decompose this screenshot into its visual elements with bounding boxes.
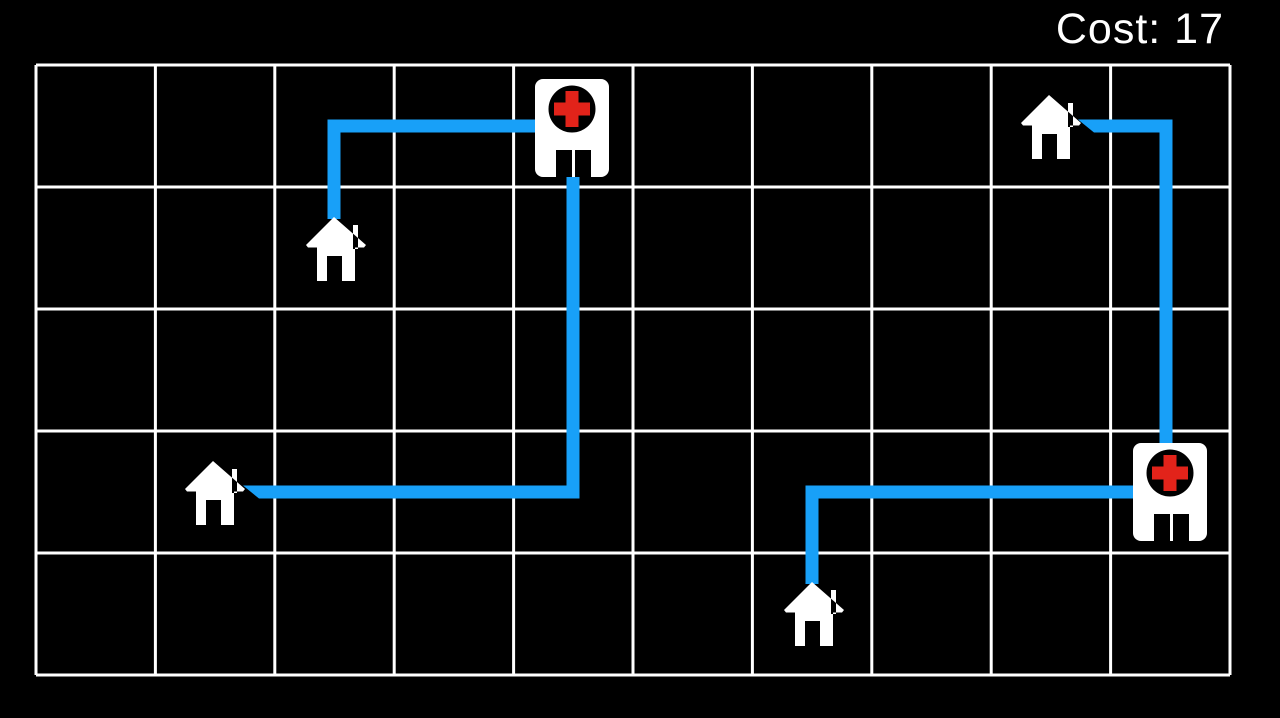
house-upper-left[interactable] [306, 217, 366, 281]
route-line [812, 492, 1146, 584]
hospital-right[interactable] [1133, 443, 1207, 541]
routes-layer [243, 120, 1166, 585]
route-line [259, 152, 573, 492]
route-tip [243, 486, 259, 499]
route-line [1094, 126, 1166, 468]
hospital-top[interactable] [535, 79, 609, 177]
route-house-upper-right-to-hospital-right[interactable] [1078, 120, 1166, 469]
house-icon [784, 582, 844, 646]
hospital-door-left [556, 150, 572, 177]
house-icon [185, 461, 245, 525]
hospital-door-right [1173, 514, 1189, 541]
hospital-door-left [1154, 514, 1170, 541]
house-bottom[interactable] [784, 582, 844, 646]
game-stage: Cost: 17 [0, 0, 1280, 718]
house-upper-right[interactable] [1021, 95, 1081, 159]
route-hospital-top-to-house-left[interactable] [243, 152, 573, 499]
house-icon [306, 217, 366, 281]
route-house-bottom-to-hospital-right[interactable] [812, 492, 1146, 584]
board-canvas[interactable] [0, 0, 1280, 718]
grid-lines-layer [36, 65, 1230, 675]
house-icon [1021, 95, 1081, 159]
hospital-door-right [575, 150, 591, 177]
house-left[interactable] [185, 461, 245, 525]
route-tip [1078, 120, 1094, 133]
